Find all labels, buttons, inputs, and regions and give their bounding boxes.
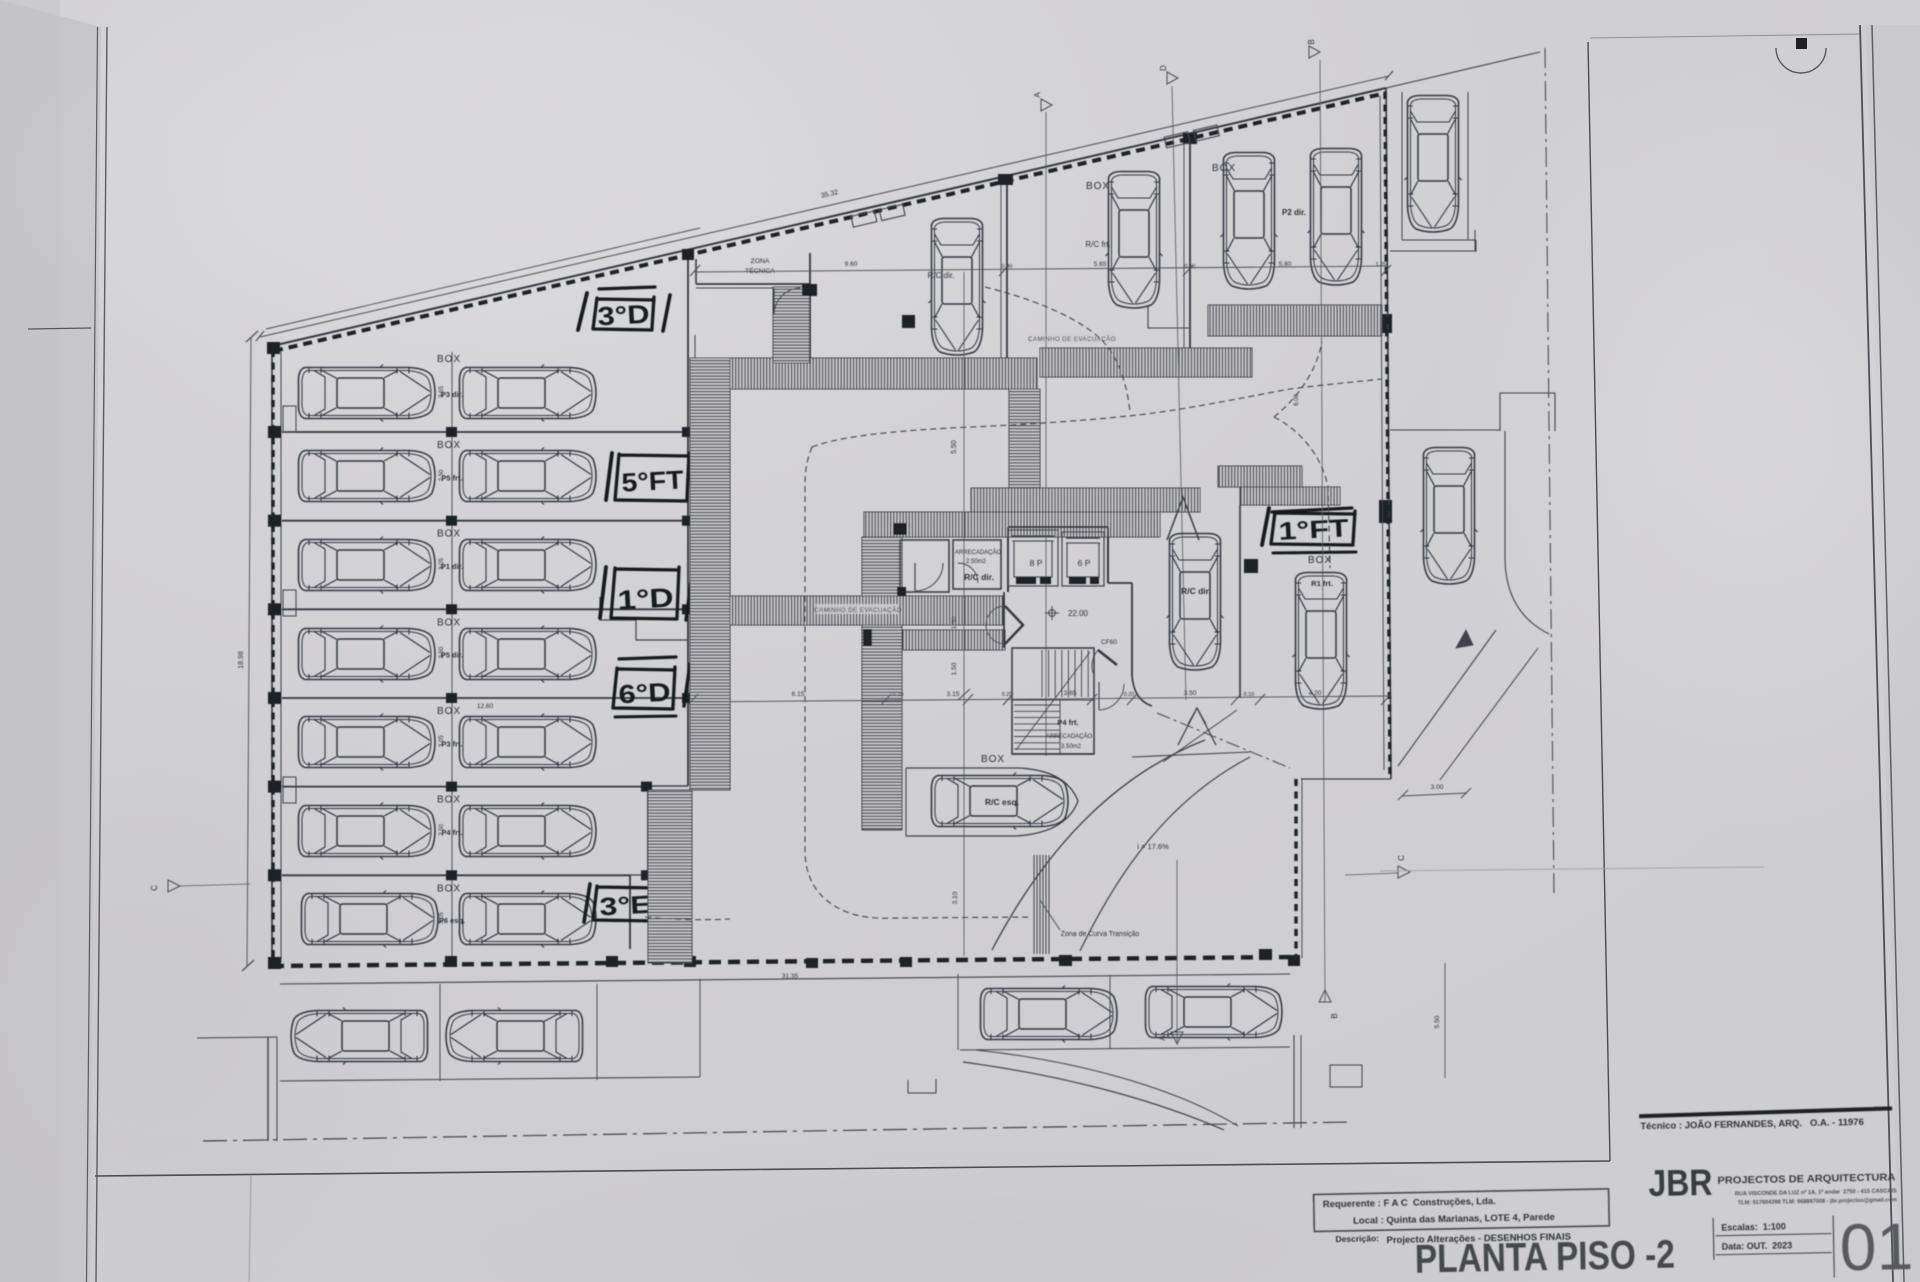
svg-text:Data: OUT. 2023: Data: OUT. 2023	[1722, 1240, 1793, 1251]
svg-text:6.00: 6.00	[1294, 394, 1300, 406]
svg-text:BOX: BOX	[437, 354, 461, 365]
svg-text:6°D: 6°D	[618, 677, 671, 710]
svg-text:CF60: CF60	[1101, 639, 1117, 646]
svg-text:Escalas: 1:100: Escalas: 1:100	[1721, 1221, 1786, 1232]
svg-text:BOX: BOX	[437, 617, 461, 628]
svg-text:CAMINHO DE EVACUAÇÃO: CAMINHO DE EVACUAÇÃO	[814, 607, 902, 614]
svg-text:4.20: 4.20	[1309, 690, 1322, 697]
svg-text:0.10: 0.10	[1002, 264, 1013, 270]
svg-text:BOX: BOX	[437, 795, 461, 806]
svg-text:2.50: 2.50	[439, 823, 445, 835]
svg-text:3.05: 3.05	[439, 912, 445, 924]
svg-text:3°E: 3°E	[599, 891, 652, 922]
svg-text:ARRECADAÇÃO: ARRECADAÇÃO	[1046, 733, 1093, 740]
svg-text:PLANTA PISO -2: PLANTA PISO -2	[1414, 1233, 1675, 1282]
svg-text:BOX: BOX	[1308, 555, 1332, 566]
svg-text:3.50: 3.50	[1184, 690, 1197, 697]
svg-text:2.50: 2.50	[439, 469, 445, 481]
svg-text:2.50m2: 2.50m2	[966, 559, 987, 565]
svg-text:A: A	[1158, 1035, 1167, 1041]
svg-text:9.60: 9.60	[845, 261, 858, 268]
svg-text:0.10: 0.10	[893, 692, 904, 698]
svg-text:0.10: 0.10	[1185, 264, 1196, 270]
svg-text:BOX: BOX	[437, 440, 461, 451]
svg-text:22.00: 22.00	[1068, 609, 1089, 618]
svg-text:P4 frt.: P4 frt.	[1057, 718, 1078, 727]
svg-text:CAMINHO DE EVACUAÇÃO: CAMINHO DE EVACUAÇÃO	[1028, 336, 1116, 343]
svg-text:3.05: 3.05	[439, 558, 445, 570]
svg-text:6 P: 6 P	[1078, 558, 1091, 568]
svg-text:B: B	[1307, 39, 1316, 44]
svg-text:8 P: 8 P	[1030, 558, 1043, 568]
svg-text:C: C	[1397, 855, 1406, 861]
svg-text:3.65: 3.65	[1064, 690, 1077, 697]
svg-text:3.15: 3.15	[947, 691, 960, 698]
svg-text:3°D: 3°D	[597, 299, 650, 332]
svg-text:0.20: 0.20	[1002, 692, 1013, 698]
svg-text:JBR: JBR	[1648, 1162, 1713, 1204]
svg-text:0.10: 0.10	[1244, 692, 1255, 698]
svg-text:BOX: BOX	[437, 883, 461, 894]
svg-text:1.25: 1.25	[1376, 262, 1387, 268]
svg-text:5°FT: 5°FT	[621, 464, 685, 497]
svg-text:0.20: 0.20	[1124, 692, 1135, 698]
svg-text:5.50: 5.50	[951, 440, 958, 454]
svg-text:5.65: 5.65	[1094, 261, 1107, 268]
svg-text:P2 dir.: P2 dir.	[1282, 208, 1306, 217]
svg-text:12.60: 12.60	[477, 703, 494, 710]
svg-text:C: C	[150, 885, 159, 891]
svg-text:BOX: BOX	[437, 529, 461, 540]
svg-text:R/C frt.: R/C frt.	[1085, 240, 1110, 249]
svg-text:ARRECADAÇÃO: ARRECADAÇÃO	[955, 549, 1002, 556]
svg-text:3.50m2: 3.50m2	[1061, 744, 1082, 750]
svg-text:ZONA: ZONA	[751, 258, 770, 265]
svg-text:A: A	[1033, 92, 1042, 98]
svg-text:3.00: 3.00	[1431, 784, 1444, 791]
svg-text:D: D	[1159, 65, 1168, 71]
svg-text:Zona de Curva Transição: Zona de Curva Transição	[1061, 931, 1140, 938]
svg-text:TÉCNICA: TÉCNICA	[745, 266, 775, 275]
svg-text:1.50: 1.50	[951, 616, 958, 629]
svg-text:3.65: 3.65	[439, 386, 445, 398]
svg-text:B: B	[1330, 1013, 1339, 1018]
svg-text:BOX: BOX	[1086, 181, 1110, 192]
svg-text:R/C dir.: R/C dir.	[1181, 586, 1211, 596]
svg-text:R1 frt.: R1 frt.	[1311, 579, 1333, 588]
svg-text:BOX: BOX	[981, 754, 1005, 765]
svg-text:1°D: 1°D	[617, 583, 674, 616]
svg-text:5.80: 5.80	[1279, 261, 1292, 268]
svg-text:1°FT: 1°FT	[1278, 514, 1349, 546]
svg-text:3.10: 3.10	[952, 891, 959, 904]
svg-text:31.35: 31.35	[782, 973, 799, 980]
svg-text:Descrição:: Descrição:	[1335, 1233, 1379, 1244]
svg-text:1.50: 1.50	[951, 662, 958, 675]
svg-text:18.98: 18.98	[238, 651, 245, 669]
svg-text:5.50: 5.50	[1434, 1015, 1441, 1028]
svg-text:01: 01	[1839, 1209, 1914, 1282]
svg-text:i = 17.6%: i = 17.6%	[1137, 842, 1169, 851]
svg-text:BOX: BOX	[437, 706, 461, 717]
svg-text:3.05: 3.05	[439, 735, 445, 747]
svg-text:R/C esq.: R/C esq.	[985, 797, 1019, 807]
svg-text:2.50: 2.50	[439, 646, 445, 658]
svg-text:R/C dir.: R/C dir.	[964, 572, 994, 582]
svg-text:6.15: 6.15	[792, 691, 805, 698]
